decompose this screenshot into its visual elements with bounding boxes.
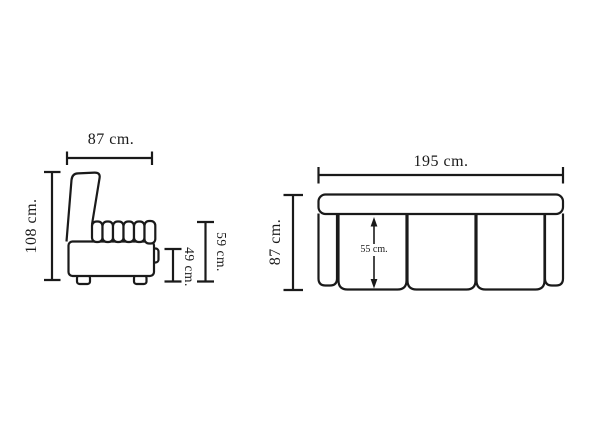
back-height-label: 59 cm. (214, 232, 228, 272)
seat-cushion-2 (408, 214, 476, 290)
sofa-base-side (69, 242, 155, 277)
seat-height-label: 49 cm. (182, 247, 196, 287)
seat-roll-cushion (92, 222, 103, 243)
seat-height-dimension-line (165, 249, 182, 282)
side-width-label: 87 cm. (88, 132, 135, 148)
front-height-dimension-line (284, 195, 304, 290)
diagram-line-art (0, 0, 600, 425)
seat-roll-cushion (113, 222, 124, 243)
sofa-armrest-right (545, 214, 563, 286)
sofa-dimensions-diagram: 87 cm. 108 cm. 49 cm. 59 cm. 195 cm. 87 … (0, 0, 600, 425)
seat-roll-cushion (103, 222, 114, 243)
sofa-armrest-left (319, 214, 338, 286)
side-height-label: 108 cm. (24, 198, 40, 253)
seat-cushion-3 (477, 214, 545, 290)
seat-roll-cushion (124, 222, 135, 243)
front-view-diagram (284, 167, 564, 290)
side-height-dimension-line (44, 172, 61, 280)
front-height-label: 87 cm. (268, 219, 284, 266)
sofa-backrest-bar (319, 195, 564, 215)
side-width-dimension-line (67, 152, 152, 166)
seat-end-cushion (145, 221, 156, 244)
seat-depth-label: 55 cm. (357, 244, 390, 256)
back-height-dimension-line (197, 222, 214, 282)
front-width-label: 195 cm. (413, 154, 468, 170)
seat-roll-cushion (134, 222, 145, 243)
